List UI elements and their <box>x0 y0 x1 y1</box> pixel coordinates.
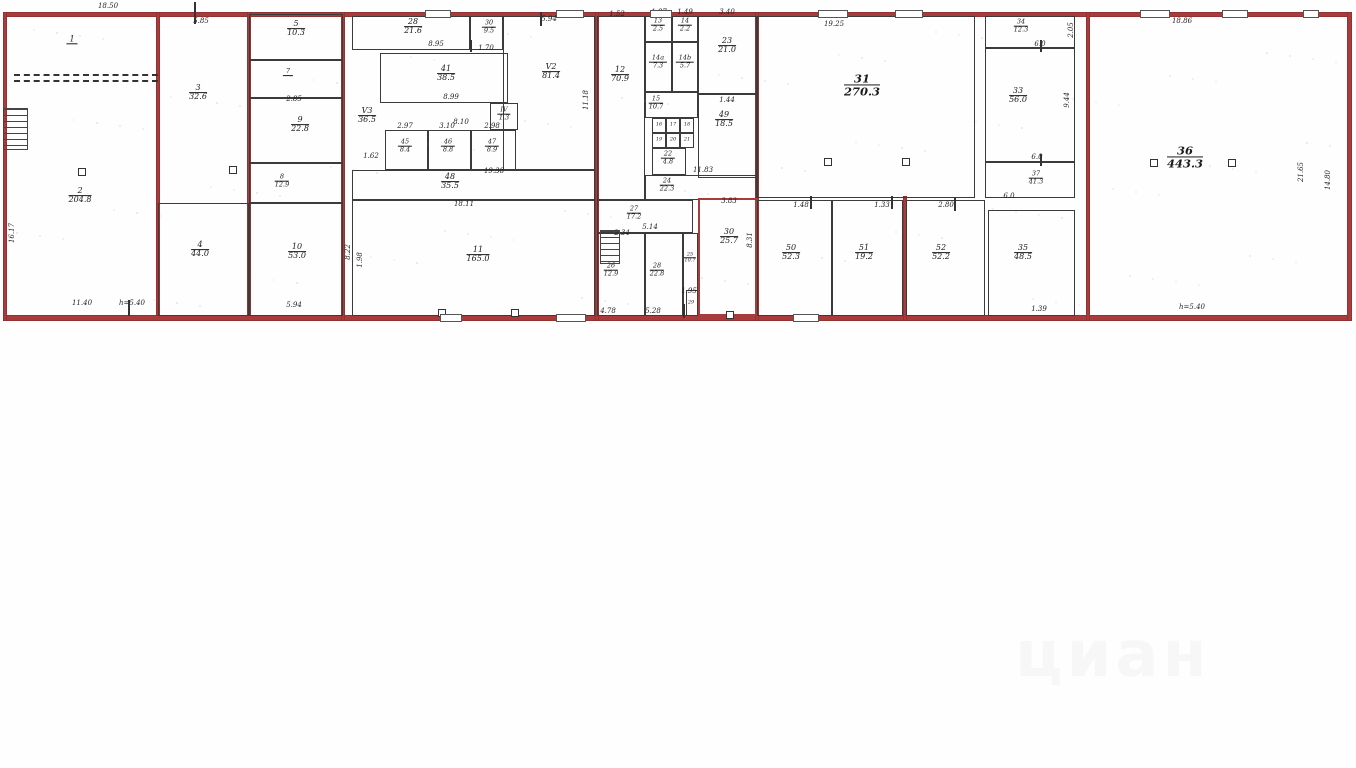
scan-speckle <box>1249 255 1251 257</box>
room-area: 70.9 <box>611 75 629 84</box>
scan-speckle <box>1078 304 1080 306</box>
scan-speckle <box>992 208 994 210</box>
scan-speckle <box>96 122 98 124</box>
dimension-label: 5.28 <box>645 307 661 315</box>
scan-speckle <box>136 212 138 214</box>
room-label-52: 5252.2 <box>932 244 950 262</box>
scan-speckle <box>239 105 241 107</box>
scan-speckle <box>216 102 218 104</box>
dimension-label: 21.65 <box>1297 162 1305 182</box>
room-7 <box>249 60 343 98</box>
room-label-4: 444.0 <box>191 241 209 259</box>
room-label-47: 478.9 <box>485 139 499 154</box>
scan-speckle <box>1295 261 1297 263</box>
dimension-label: 2.80 <box>938 201 954 209</box>
scan-speckle <box>707 193 709 195</box>
room-label-19: 19 <box>653 137 665 142</box>
window-opening <box>650 10 672 18</box>
dimension-label: 16.17 <box>8 223 16 243</box>
room-label-V2: V281.4 <box>542 63 560 81</box>
scan-speckle <box>935 31 937 33</box>
scanned-floorplan-page: 12204.8332.6444.0510.37922.8812.91053.02… <box>0 0 1356 768</box>
scan-speckle <box>142 128 144 130</box>
scan-speckle <box>376 172 378 174</box>
exterior-wall <box>1347 12 1352 321</box>
column-mark <box>1228 159 1236 167</box>
scan-speckle <box>1135 191 1137 193</box>
dimension-label: 9.44 <box>1063 92 1071 108</box>
scan-speckle <box>467 233 469 235</box>
room-label-28: 2822.8 <box>650 263 664 278</box>
dimension-tick <box>1040 154 1042 166</box>
scan-speckle <box>210 186 212 188</box>
scan-speckle <box>587 213 589 215</box>
scan-speckle <box>450 146 452 148</box>
scan-speckle <box>410 56 412 58</box>
scan-speckle <box>1175 281 1177 283</box>
room-area: 22.8 <box>650 270 664 278</box>
room-area: 17.2 <box>627 213 641 221</box>
dimension-label: 5.85 <box>193 17 209 25</box>
room-label-29: 29 <box>685 300 697 305</box>
room-label-35: 3548.5 <box>1014 244 1032 262</box>
room-23 <box>698 16 757 94</box>
scan-speckle <box>918 234 920 236</box>
scan-speckle <box>1192 78 1194 80</box>
room-label-3: 332.6 <box>189 84 207 102</box>
scan-speckle <box>444 230 446 232</box>
stairs <box>600 230 620 264</box>
dimension-label: 1.62 <box>363 152 379 160</box>
watermark: циан <box>1015 618 1335 692</box>
room-34 <box>985 16 1075 48</box>
room-label-24: 2422.3 <box>660 178 674 193</box>
scan-speckle <box>330 166 332 168</box>
scan-speckle <box>273 279 275 281</box>
scan-speckle <box>861 57 863 59</box>
dimension-label: 5.94 <box>286 301 302 309</box>
scan-speckle <box>1032 298 1034 300</box>
dimension-label: 18.86 <box>1172 17 1192 25</box>
scan-speckle <box>1198 284 1200 286</box>
dimension-label: 5.94 <box>541 15 557 23</box>
room-area: 10.3 <box>287 29 305 38</box>
scan-speckle <box>490 236 492 238</box>
scan-speckle <box>313 79 315 81</box>
dashed-partition <box>14 74 158 82</box>
room-area: 18.5 <box>715 120 733 129</box>
scan-speckle <box>1329 145 1331 147</box>
scan-speckle <box>1129 275 1131 277</box>
dimension-label: 1.98 <box>356 252 364 268</box>
room-label-46: 468.8 <box>441 139 455 154</box>
room-area: 56.0 <box>1009 96 1027 105</box>
scan-speckle <box>307 163 309 165</box>
scan-speckle <box>975 121 977 123</box>
room-label-8: 812.9 <box>275 174 289 189</box>
dimension-label: 8.99 <box>443 93 459 101</box>
dimension-label: 1.48 <box>793 201 809 209</box>
dimension-label: 1.44 <box>719 96 735 104</box>
room-label-23: 2321.0 <box>718 37 736 55</box>
dimension-label: 1.49 <box>677 8 693 16</box>
room-label-14b: 14b5.7 <box>676 55 694 70</box>
scan-speckle <box>530 36 532 38</box>
dimension-label: 1.95 <box>681 287 697 295</box>
scan-speckle <box>895 231 897 233</box>
room-label-11: 11165.0 <box>467 246 490 264</box>
dimension-label: 1.39 <box>1031 305 1047 313</box>
room-label-25: 2510.7 <box>684 252 696 264</box>
dimension-label: 11.18 <box>582 90 590 110</box>
scan-speckle <box>416 262 418 264</box>
scan-speckle <box>119 125 121 127</box>
dimension-label: h=5.40 <box>1179 303 1205 311</box>
scan-speckle <box>347 253 349 255</box>
dimension-label: 2.97 <box>397 122 413 130</box>
room-label-51: 5119.2 <box>855 244 873 262</box>
window-opening <box>425 10 451 18</box>
scan-speckle <box>958 34 960 36</box>
room-area: 2.2 <box>680 25 690 33</box>
room-area: 19.2 <box>855 253 873 262</box>
dimension-label: 6.0 <box>1003 192 1014 200</box>
scan-speckle <box>661 187 663 189</box>
scan-speckle <box>1118 104 1120 106</box>
dimension-tick <box>954 198 956 211</box>
room-number: 29 <box>685 300 697 305</box>
room-number: 19 <box>653 137 665 142</box>
window-opening <box>793 314 819 322</box>
dimension-label: 8.95 <box>428 40 444 48</box>
scan-speckle <box>627 303 629 305</box>
scan-speckle <box>1072 98 1074 100</box>
room-area: 4.8 <box>663 158 673 166</box>
dimension-label: 1.33 <box>874 201 890 209</box>
scan-speckle <box>844 260 846 262</box>
exterior-wall <box>3 12 7 321</box>
scan-speckle <box>1169 75 1171 77</box>
scan-speckle <box>1095 101 1097 103</box>
scan-speckle <box>193 99 195 101</box>
window-opening <box>440 314 462 322</box>
scan-speckle <box>290 76 292 78</box>
column-mark <box>902 158 910 166</box>
room-label-49: 4918.5 <box>715 111 733 129</box>
room-area: 41.3 <box>1029 178 1043 186</box>
column-mark <box>1150 159 1158 167</box>
scan-speckle <box>621 97 623 99</box>
dimension-label: 8.22 <box>344 244 352 260</box>
room-label-5: 510.3 <box>287 20 305 38</box>
room-area: 8.9 <box>487 146 497 154</box>
room-label-22: 224.8 <box>661 151 675 166</box>
scan-speckle <box>39 235 41 237</box>
scan-speckle <box>1209 165 1211 167</box>
dimension-label: 2.98 <box>484 122 500 130</box>
room-label-34: 3412.3 <box>1014 19 1028 34</box>
dimension-tick <box>194 2 196 24</box>
room-label-1: 1 <box>66 35 77 44</box>
scan-speckle <box>159 215 161 217</box>
column-mark <box>726 311 734 319</box>
scan-speckle <box>387 53 389 55</box>
room-label-21: 21 <box>681 137 693 142</box>
room-area: 36.5 <box>358 116 376 125</box>
scan-speckle <box>79 35 81 37</box>
scan-speckle <box>62 238 64 240</box>
room-area: 22.8 <box>291 125 309 134</box>
scan-speckle <box>667 103 669 105</box>
room-label-41: 4138.5 <box>437 65 455 83</box>
dimension-label: 14.80 <box>1324 170 1332 190</box>
dimension-label: 5.14 <box>642 223 658 231</box>
window-opening <box>1303 10 1319 18</box>
room-label-17: 17 <box>667 122 679 127</box>
scan-speckle <box>781 167 783 169</box>
scan-speckle <box>102 38 104 40</box>
room-label-37: 3741.3 <box>1029 171 1043 186</box>
scan-speckle <box>33 29 35 31</box>
room-label-28: 2821.6 <box>404 18 422 36</box>
dimension-label: 11.40 <box>72 299 92 307</box>
dimension-label: 4.78 <box>600 307 616 315</box>
room-label-36: 36443.3 <box>1167 144 1203 169</box>
scan-speckle <box>427 143 429 145</box>
room-label-IV: IV1.3 <box>497 107 510 122</box>
room-label-12: 1270.9 <box>611 66 629 84</box>
room-12 <box>597 16 645 200</box>
scan-speckle <box>279 195 281 197</box>
scan-speckle <box>296 282 298 284</box>
dimension-tick <box>891 196 893 209</box>
room-area: 1.3 <box>499 114 509 122</box>
room-label-33: 3356.0 <box>1009 87 1027 105</box>
window-opening <box>1222 10 1248 18</box>
dimension-tick <box>540 12 542 26</box>
dimension-label: 1.52 <box>609 10 625 18</box>
scan-speckle <box>650 306 652 308</box>
dimension-tick <box>1040 40 1042 52</box>
scan-speckle <box>1061 217 1063 219</box>
room-label-18: 18 <box>681 122 693 127</box>
room-label-50: 5052.3 <box>782 244 800 262</box>
scan-speckle <box>941 237 943 239</box>
scan-speckle <box>604 300 606 302</box>
room-area: 165.0 <box>467 255 490 264</box>
window-opening <box>1140 10 1170 18</box>
room-area: 2.5 <box>653 25 663 33</box>
room-label-7: 7 <box>283 68 293 76</box>
room-label-14a: 14a7.3 <box>649 55 667 70</box>
room-area: 52.2 <box>932 253 950 262</box>
dimension-label: 11.83 <box>693 166 713 174</box>
scan-speckle <box>370 256 372 258</box>
scan-speckle <box>170 96 172 98</box>
room-area: 10.7 <box>649 103 663 111</box>
room-33 <box>985 48 1075 162</box>
dimension-tick <box>128 300 130 316</box>
scan-speckle <box>1152 278 1154 280</box>
room-area: 12.9 <box>604 270 618 278</box>
dimension-label: 8.31 <box>746 232 754 248</box>
room-area: 12.3 <box>1014 26 1028 34</box>
room-area: 32.6 <box>189 93 207 102</box>
scan-speckle <box>56 32 58 34</box>
room-label-2: 2204.8 <box>69 187 92 205</box>
scan-speckle <box>73 119 75 121</box>
room-area: 204.8 <box>69 196 92 205</box>
scan-speckle <box>998 124 1000 126</box>
scan-speckle <box>838 54 840 56</box>
scan-speckle <box>684 190 686 192</box>
scan-speckle <box>1335 61 1337 63</box>
room-area: 5.7 <box>680 62 690 70</box>
room-area: 38.5 <box>437 74 455 83</box>
scan-speckle <box>1215 81 1217 83</box>
scan-speckle <box>610 216 612 218</box>
scan-speckle <box>336 82 338 84</box>
column-mark <box>511 309 519 317</box>
scan-speckle <box>22 148 24 150</box>
dimension-label: 3.40 <box>719 8 735 16</box>
room-area: 81.4 <box>542 72 560 81</box>
room-area: 21.0 <box>718 46 736 55</box>
dimension-label: 18.50 <box>98 2 118 10</box>
dimension-tick <box>810 196 812 209</box>
room-label-30: 3025.7 <box>720 228 738 246</box>
scan-speckle <box>1312 58 1314 60</box>
scan-speckle <box>878 144 880 146</box>
scan-speckle <box>513 239 515 241</box>
scan-speckle <box>524 120 526 122</box>
room-8 <box>249 163 343 203</box>
scan-speckle <box>507 33 509 35</box>
scan-speckle <box>393 259 395 261</box>
scan-speckle <box>1306 142 1308 144</box>
room-number: 16 <box>653 122 665 127</box>
room-label-30: 309.5 <box>482 20 496 35</box>
room-label-20: 20 <box>667 137 679 142</box>
exterior-wall <box>1086 12 1090 321</box>
scan-speckle <box>1255 171 1257 173</box>
scan-speckle <box>644 100 646 102</box>
scan-speckle <box>718 74 720 76</box>
dimension-tick <box>470 40 472 52</box>
scan-speckle <box>981 37 983 39</box>
room-label-26: 2612.9 <box>604 263 618 278</box>
room-area: 443.3 <box>1167 157 1203 171</box>
scan-speckle <box>798 254 800 256</box>
stairs <box>3 108 28 150</box>
room-label-14: 142.2 <box>678 18 692 33</box>
scan-speckle <box>1112 188 1114 190</box>
scan-speckle <box>153 299 155 301</box>
room-number: 18 <box>681 122 693 127</box>
room-label-48: 4835.5 <box>441 173 459 191</box>
room-area: 12.9 <box>275 181 289 189</box>
scan-speckle <box>758 164 760 166</box>
room-area: 25.7 <box>720 237 738 246</box>
scan-speckle <box>547 123 549 125</box>
scan-speckle <box>1158 194 1160 196</box>
room-30 <box>698 198 757 316</box>
scan-speckle <box>353 169 355 171</box>
scan-speckle <box>199 305 201 307</box>
scan-speckle <box>433 59 435 61</box>
room-label-V3: V336.5 <box>358 107 376 125</box>
scan-speckle <box>581 297 583 299</box>
scan-speckle <box>821 257 823 259</box>
room-number: 1 <box>66 35 77 44</box>
dimension-label: 19.38 <box>484 167 504 175</box>
scan-speckle <box>741 77 743 79</box>
room-label-45: 458.4 <box>398 139 412 154</box>
room-area: 21.6 <box>404 27 422 36</box>
scan-speckle <box>564 210 566 212</box>
room-number: 7 <box>283 68 293 76</box>
window-opening <box>556 10 584 18</box>
room-48 <box>352 170 595 200</box>
scan-speckle <box>16 232 18 234</box>
dimension-tick <box>683 304 685 318</box>
room-number: 21 <box>681 137 693 142</box>
room-label-31: 31270.3 <box>844 72 880 97</box>
scan-speckle <box>1289 55 1291 57</box>
scan-speckle <box>176 302 178 304</box>
window-opening <box>895 10 923 18</box>
dimension-label: 3.83 <box>721 197 737 205</box>
scan-speckle <box>250 276 252 278</box>
room-label-13: 132.5 <box>651 18 665 33</box>
room-label-15: 1510.7 <box>649 96 663 111</box>
scan-speckle <box>787 83 789 85</box>
scan-speckle <box>724 280 726 282</box>
scan-speckle <box>901 147 903 149</box>
window-opening <box>556 314 586 322</box>
room-number: 20 <box>667 137 679 142</box>
scan-speckle <box>924 150 926 152</box>
scan-speckle <box>1015 211 1017 213</box>
room-label-27: 2717.2 <box>627 206 641 221</box>
scan-speckle <box>855 141 857 143</box>
room-area: 44.0 <box>191 250 209 259</box>
room-31 <box>757 16 975 198</box>
scan-speckle <box>473 149 475 151</box>
scan-speckle <box>256 192 258 194</box>
dimension-label: h=5.40 <box>119 299 145 307</box>
floor-plan: 12204.8332.6444.0510.37922.8812.91053.02… <box>0 0 1356 330</box>
room-35 <box>988 210 1075 316</box>
dimension-label: 3.10 <box>439 122 455 130</box>
scan-speckle <box>233 189 235 191</box>
dimension-label: 19.25 <box>824 20 844 28</box>
scan-speckle <box>804 170 806 172</box>
scan-speckle <box>1272 258 1274 260</box>
scan-speckle <box>113 209 115 211</box>
column-mark <box>824 158 832 166</box>
window-opening <box>818 10 848 18</box>
room-4 <box>158 203 249 316</box>
room-area: 8.4 <box>400 146 410 154</box>
room-label-9: 922.8 <box>291 116 309 134</box>
column-mark <box>78 168 86 176</box>
room-area: 7.3 <box>653 62 663 70</box>
scan-speckle <box>570 126 572 128</box>
room-area: 35.5 <box>441 182 459 191</box>
column-mark <box>229 166 237 174</box>
room-area: 48.5 <box>1014 253 1032 262</box>
